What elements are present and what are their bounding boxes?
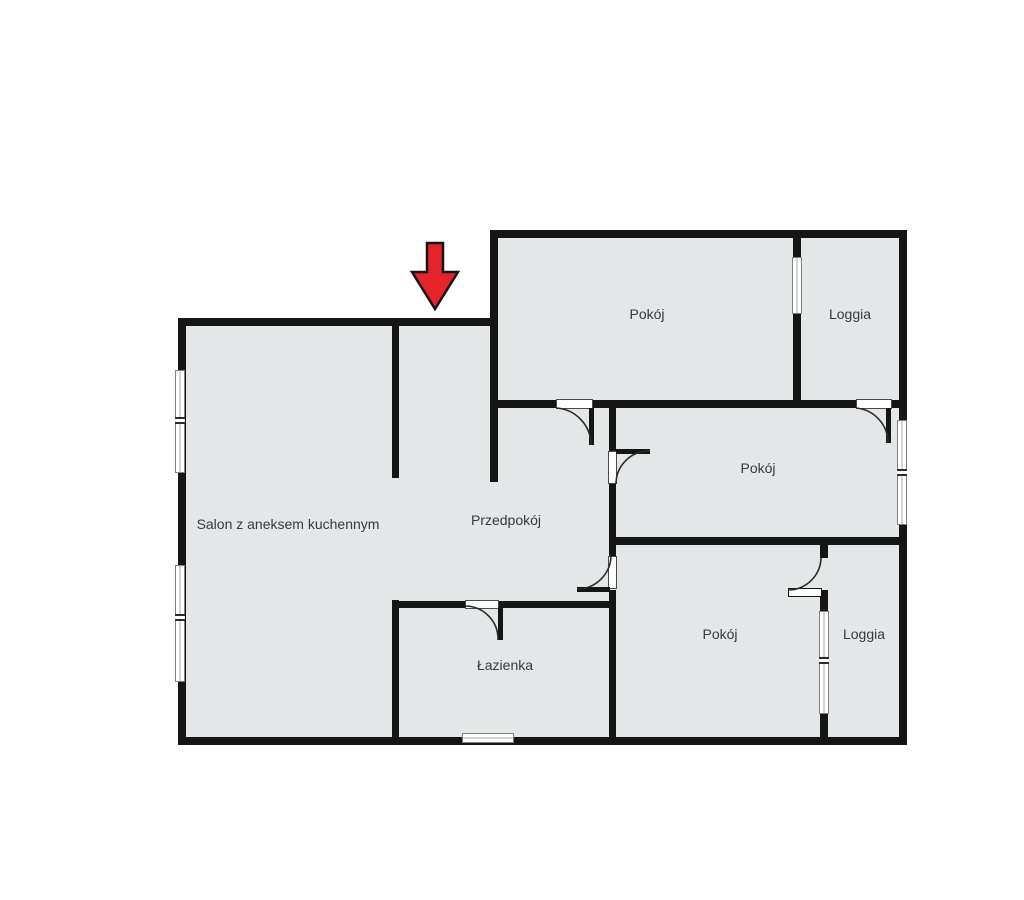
room-label-salon: Salon z aneksem kuchennym	[197, 516, 380, 532]
window-salon-lower-divider	[175, 614, 185, 621]
door-top-room-threshold	[556, 399, 593, 409]
room-label-loggia-bottom: Loggia	[843, 626, 885, 642]
door-bottom-room-leaf	[577, 587, 610, 592]
door-middle-room-leaf	[616, 449, 650, 454]
door-middle-room-threshold	[608, 451, 617, 484]
wall-bathroom-top-left	[392, 601, 465, 608]
wall-top-loggia-a	[793, 230, 801, 258]
room-label-loggia-top: Loggia	[829, 306, 871, 322]
window-bottom-loggia-divider	[819, 657, 829, 664]
wall-hall-rooms-a	[609, 404, 616, 452]
window-middle-room-divider	[897, 469, 907, 476]
wall-middle-room-bottom	[609, 537, 907, 545]
room-label-lazienka: Łazienka	[477, 657, 533, 673]
floor-plan: Salon z aneksem kuchennym Przedpokój Łaz…	[0, 0, 1024, 900]
entrance-arrow-icon	[412, 243, 458, 309]
wall-bathroom-top-right	[498, 601, 615, 608]
door-bathroom-threshold	[465, 600, 499, 609]
wall-outer-top-left	[178, 318, 498, 326]
wall-outer-bottom	[178, 737, 907, 745]
window-top-loggia	[792, 257, 802, 314]
wall-horizontal-mid-a	[490, 400, 556, 408]
wall-horizontal-mid-c	[891, 400, 907, 408]
wall-bottom-loggia-c	[820, 713, 828, 745]
room-label-przedpokoj: Przedpokój	[471, 512, 541, 528]
wall-bottom-loggia-a	[820, 545, 828, 558]
wall-corridor-vertical	[490, 230, 498, 482]
wall-top-loggia-b	[793, 313, 801, 408]
wall-salon-bathroom	[392, 600, 399, 745]
room-label-pokoj-top: Pokój	[629, 306, 664, 322]
wall-salon-hall-upper	[392, 318, 399, 478]
door-bottom-loggia-leaf	[788, 588, 822, 597]
window-salon-lower	[175, 565, 185, 682]
wall-horizontal-mid-b	[593, 400, 856, 408]
wall-hall-rooms-c	[609, 590, 616, 745]
door-top-loggia-leaf	[886, 408, 891, 443]
window-salon-upper-divider	[175, 417, 185, 424]
room-label-pokoj-middle: Pokój	[740, 460, 775, 476]
wall-outer-top-right	[490, 230, 907, 238]
door-top-room-leaf	[589, 408, 594, 445]
door-bottom-room-threshold	[608, 556, 617, 589]
room-label-pokoj-bottom: Pokój	[702, 626, 737, 642]
wall-hall-rooms-b	[609, 483, 616, 557]
window-bathroom	[462, 733, 514, 743]
door-bathroom-leaf	[498, 607, 503, 640]
